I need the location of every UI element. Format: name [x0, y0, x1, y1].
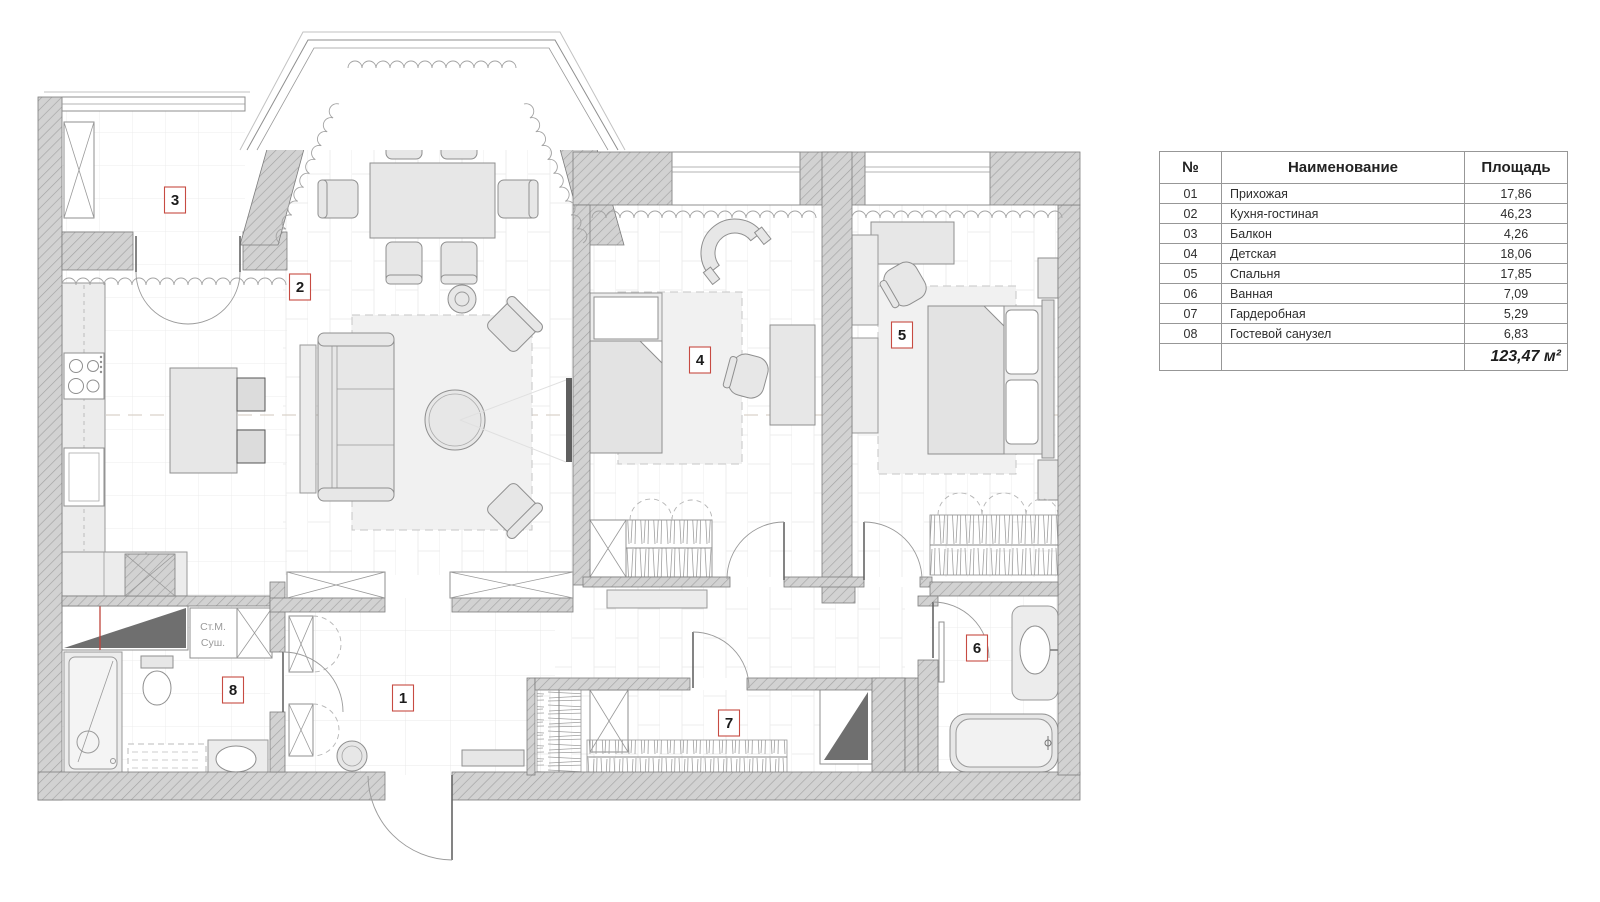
svg-text:4: 4 [696, 352, 705, 369]
window-bay [247, 40, 618, 150]
floorplan-page: Ст.М. Суш. [0, 0, 1600, 902]
toilet-guest [141, 656, 173, 705]
legend-cell-num: 04 [1160, 244, 1222, 264]
legend-cell-name: Гардеробная [1222, 304, 1465, 324]
svg-text:1: 1 [399, 690, 407, 707]
nightstand [1038, 460, 1058, 500]
legend-cell-name: Кухня-гостиная [1222, 204, 1465, 224]
floor-balcony-doorway [133, 232, 243, 270]
bed-children [590, 293, 662, 453]
legend-header-row: № Наименование Площадь [1160, 152, 1568, 184]
pillow [1006, 380, 1038, 444]
legend-cell-area: 17,85 [1465, 264, 1568, 284]
legend-cell-num: 05 [1160, 264, 1222, 284]
legend-cell-name: Балкон [1222, 224, 1465, 244]
legend-cell-name: Прихожая [1222, 184, 1465, 204]
legend-cell-num: 03 [1160, 224, 1222, 244]
shaft-wardrobe [820, 686, 872, 764]
legend-cell-num: 06 [1160, 284, 1222, 304]
legend-row: 02Кухня-гостиная46,23 [1160, 204, 1568, 224]
legend-row: 05Спальня17,85 [1160, 264, 1568, 284]
hall-pouf [337, 741, 367, 771]
legend-cell-name: Детская [1222, 244, 1465, 264]
legend-row: 03Балкон4,26 [1160, 224, 1568, 244]
coffee-table [425, 390, 485, 450]
legend-cell-area: 5,29 [1465, 304, 1568, 324]
legend-total-row: 123,47 м² [1160, 344, 1568, 371]
pillow [594, 297, 658, 339]
legend-total-spacer [1222, 344, 1465, 371]
legend-cell-area: 6,83 [1465, 324, 1568, 344]
sofa [318, 333, 394, 501]
console-shelf [300, 345, 316, 493]
svg-text:5: 5 [898, 327, 906, 344]
hall-bench [462, 750, 524, 766]
legend-total-area: 123,47 м² [1465, 344, 1568, 371]
svg-text:3: 3 [171, 192, 179, 209]
legend-cell-num: 07 [1160, 304, 1222, 324]
legend-header-num: № [1160, 152, 1222, 184]
plant-icon [448, 285, 476, 313]
dining-table [370, 163, 495, 238]
legend-cell-area: 46,23 [1465, 204, 1568, 224]
legend-cell-num: 01 [1160, 184, 1222, 204]
shower [64, 652, 122, 774]
nightstand [1038, 258, 1058, 298]
corridor-cabinet [607, 590, 707, 608]
bar-stool [237, 430, 265, 463]
bathtub [950, 714, 1058, 772]
wardrobe-bedroom [852, 338, 878, 433]
legend-row: 04Детская18,06 [1160, 244, 1568, 264]
tv [566, 378, 572, 462]
room-marker-5: 5 [892, 322, 913, 348]
washer-dryer: Ст.М. Суш. [190, 608, 272, 658]
desk-children [770, 325, 815, 425]
lintel-boxes [287, 572, 573, 598]
room-marker-4: 4 [690, 347, 711, 373]
room-marker-8: 8 [223, 677, 244, 703]
legend-cell-area: 7,09 [1465, 284, 1568, 304]
legend-cell-name: Спальня [1222, 264, 1465, 284]
legend-cell-num: 02 [1160, 204, 1222, 224]
legend-header-name: Наименование [1222, 152, 1465, 184]
room-marker-6: 6 [967, 635, 988, 661]
legend-row: 01Прихожая17,86 [1160, 184, 1568, 204]
room-marker-7: 7 [719, 710, 740, 736]
legend-cell-name: Гостевой санузел [1222, 324, 1465, 344]
kitchen-sink-icon [64, 448, 104, 506]
towel-rail [939, 622, 944, 682]
window-bedroom [865, 152, 990, 205]
legend-total-spacer [1160, 344, 1222, 371]
wardrobe-bedroom [852, 235, 878, 325]
floor-mat [128, 744, 206, 776]
balcony-cabinet [64, 122, 94, 218]
shaft-kitchen [62, 600, 188, 650]
legend-row: 06Ванная7,09 [1160, 284, 1568, 304]
legend-rows: 01Прихожая17,8602Кухня-гостиная46,2303Ба… [1160, 184, 1568, 344]
legend-cell-area: 17,86 [1465, 184, 1568, 204]
bathroom-sink [1012, 606, 1060, 700]
legend-cell-num: 08 [1160, 324, 1222, 344]
room-marker-2: 2 [290, 274, 311, 300]
window-children [672, 152, 800, 205]
svg-text:7: 7 [725, 715, 733, 732]
pillow [1006, 310, 1038, 374]
svg-text:8: 8 [229, 682, 237, 699]
room-legend-table: № Наименование Площадь 01Прихожая17,8602… [1159, 151, 1568, 371]
room-marker-1: 1 [393, 685, 414, 711]
legend-cell-name: Ванная [1222, 284, 1465, 304]
legend-cell-area: 18,06 [1465, 244, 1568, 264]
dryer-label: Суш. [201, 637, 225, 649]
bed-double [928, 300, 1054, 458]
kitchen-counter [62, 283, 105, 553]
bar-stool [237, 378, 265, 411]
legend-cell-area: 4,26 [1465, 224, 1568, 244]
svg-text:6: 6 [973, 640, 981, 657]
legend-header-area: Площадь [1465, 152, 1568, 184]
legend-row: 08Гостевой санузел6,83 [1160, 324, 1568, 344]
svg-text:2: 2 [296, 279, 304, 296]
desk-bedroom [871, 222, 954, 264]
floor-hall-passage [385, 598, 452, 612]
cooktop-icon [64, 353, 104, 399]
washer-label: Ст.М. [200, 621, 226, 633]
floor-plan: Ст.М. Суш. [0, 0, 1600, 902]
legend-row: 07Гардеробная5,29 [1160, 304, 1568, 324]
room-marker-3: 3 [165, 187, 186, 213]
